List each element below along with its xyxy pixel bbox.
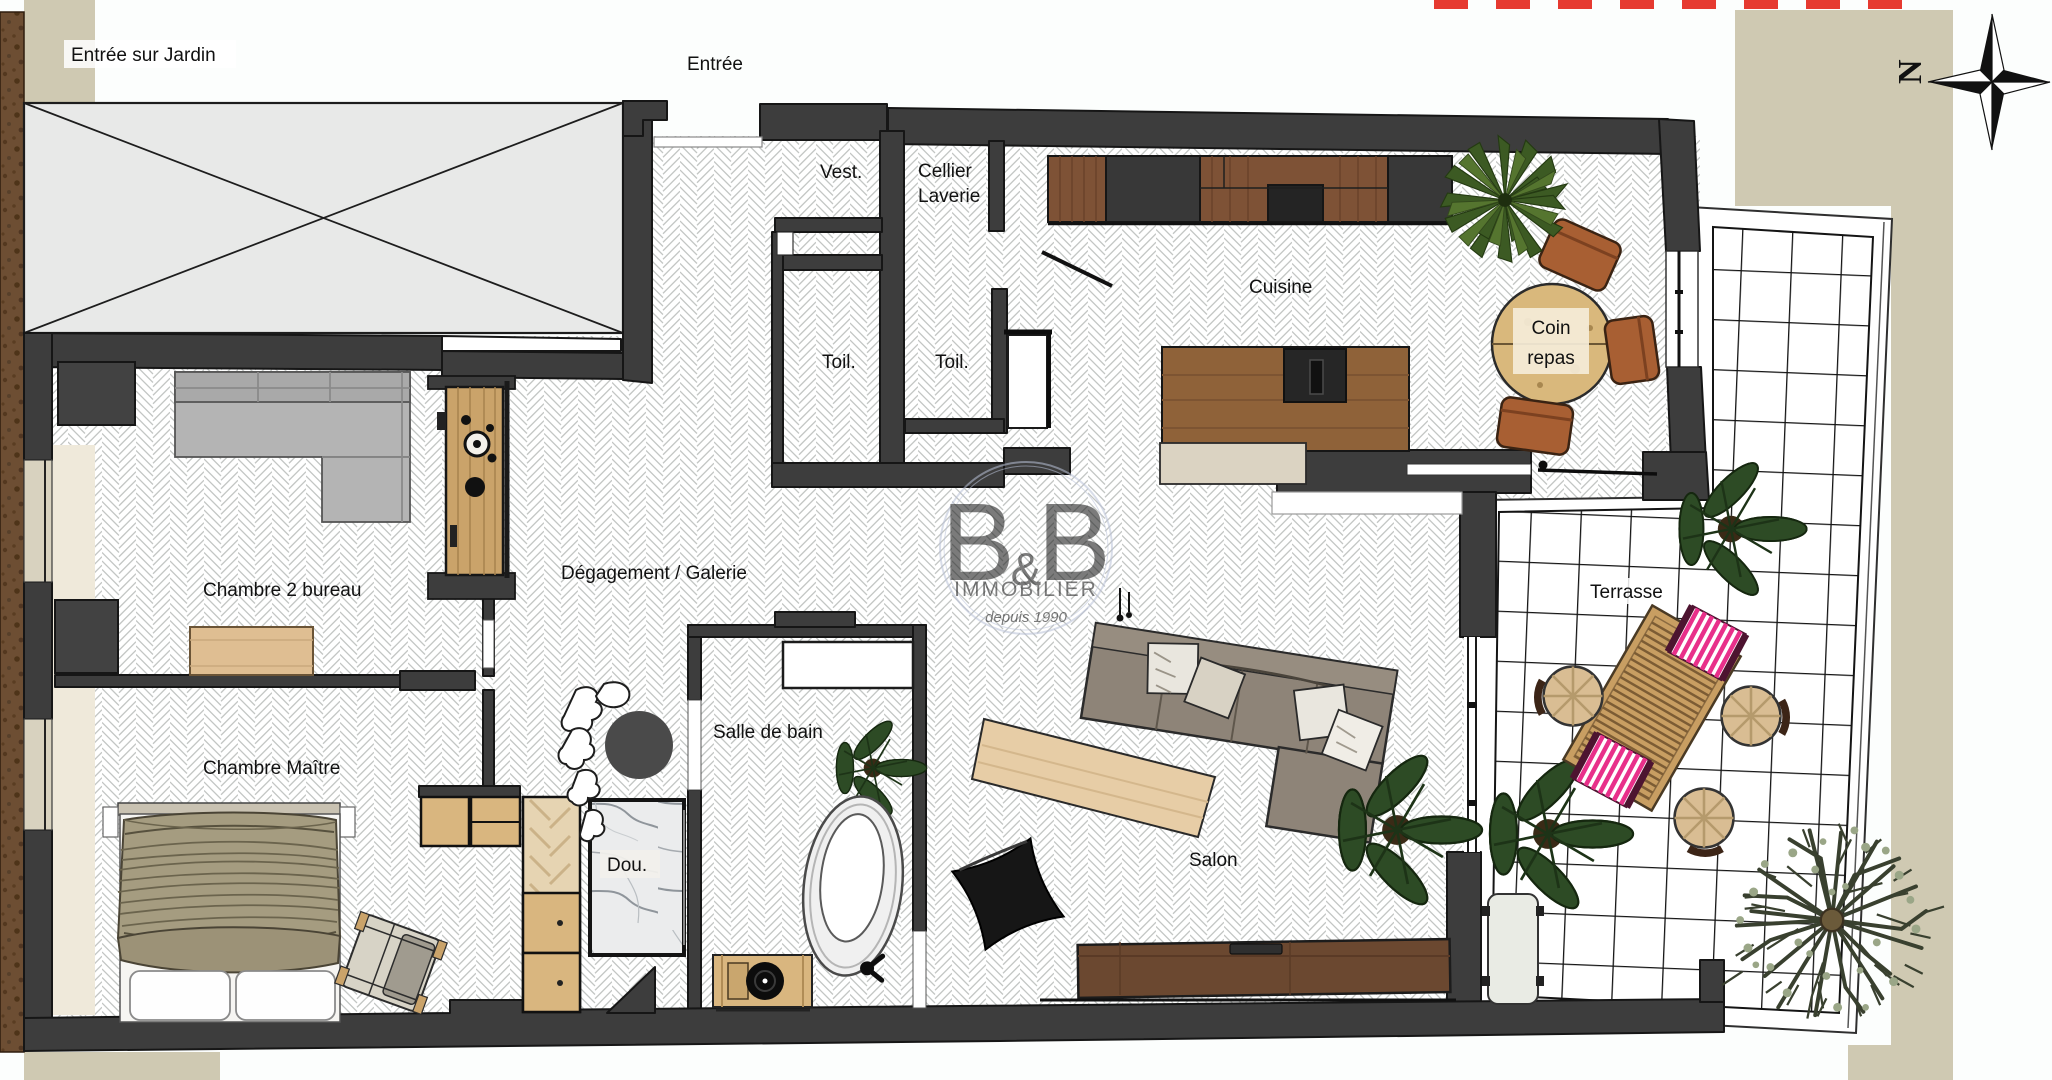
svg-text:Chambre 2 bureau: Chambre 2 bureau bbox=[203, 580, 361, 601]
svg-text:Toil.: Toil. bbox=[822, 352, 856, 373]
svg-text:depuis 1990: depuis 1990 bbox=[985, 609, 1067, 626]
svg-text:Entrée: Entrée bbox=[687, 54, 743, 75]
svg-text:Cellier: Cellier bbox=[918, 161, 973, 182]
svg-text:Toil.: Toil. bbox=[935, 352, 969, 373]
svg-text:Laverie: Laverie bbox=[918, 186, 980, 207]
svg-text:IMMOBILIER: IMMOBILIER bbox=[954, 578, 1098, 601]
svg-text:Dou.: Dou. bbox=[607, 855, 647, 876]
svg-text:Entrée sur Jardin: Entrée sur Jardin bbox=[71, 45, 216, 66]
svg-text:Cuisine: Cuisine bbox=[1249, 277, 1312, 298]
svg-text:Salle de bain: Salle de bain bbox=[713, 722, 823, 743]
svg-text:Dégagement / Galerie: Dégagement / Galerie bbox=[561, 563, 747, 584]
svg-text:repas: repas bbox=[1527, 348, 1575, 369]
svg-text:Coin: Coin bbox=[1531, 318, 1570, 339]
svg-text:Salon: Salon bbox=[1189, 850, 1238, 871]
svg-text:Chambre Maître: Chambre Maître bbox=[203, 758, 340, 779]
svg-text:Vest.: Vest. bbox=[820, 162, 862, 183]
svg-text:N: N bbox=[1892, 59, 1929, 84]
svg-text:Terrasse: Terrasse bbox=[1590, 582, 1663, 603]
